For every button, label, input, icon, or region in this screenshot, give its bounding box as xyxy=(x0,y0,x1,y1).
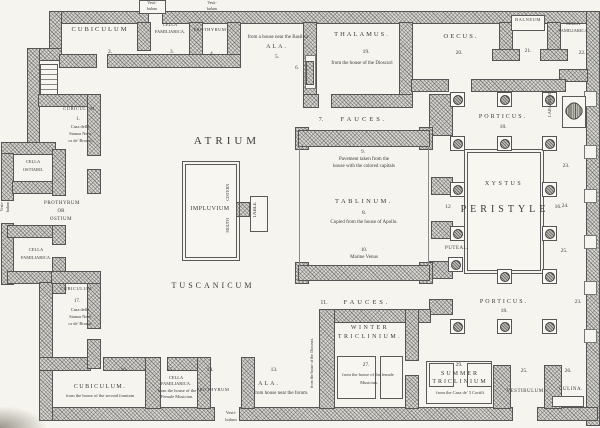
column-icon xyxy=(450,319,465,334)
prothyrum4-label: PROTHYRUM xyxy=(194,28,227,33)
ostium1-label: PROTHYRUM xyxy=(44,201,80,206)
wall-segment xyxy=(28,49,39,152)
wall-segment xyxy=(299,131,429,146)
casa2-label: Stanza Nera xyxy=(69,132,91,137)
casa2-label: Stanza Nera xyxy=(69,315,91,320)
winter2-label: TRICLINIUM. xyxy=(338,334,402,340)
table-label: TABLE xyxy=(253,202,258,218)
n24-label: 24. xyxy=(562,204,569,210)
wall-segment xyxy=(242,358,254,408)
wall-segment xyxy=(146,358,160,408)
ala5_note-label: from a house near the Basilica xyxy=(248,35,309,40)
cub16-label: CUBICULUM. xyxy=(74,384,127,390)
cubiculum2-label: CUBICULUM xyxy=(71,27,128,34)
no26-label: 26. xyxy=(565,369,572,375)
vesti1-label: Vesti- xyxy=(207,1,216,5)
culina-label: CULINA. xyxy=(559,387,583,392)
vesti1-label: Vesti- xyxy=(226,411,237,416)
no7-label: 7. xyxy=(319,117,324,123)
column-shaft xyxy=(500,95,510,105)
wall-segment xyxy=(138,23,150,50)
xystus-label: XYSTUS xyxy=(485,181,523,187)
column-icon xyxy=(542,226,557,241)
tabn2-label: house with the colored capitals xyxy=(333,164,395,169)
no13-label: 13. xyxy=(271,368,278,374)
no1-label: 1. xyxy=(76,117,80,122)
tabn1-label: Pavement taken from the xyxy=(339,157,389,162)
wall-segment xyxy=(40,408,214,420)
column-icon xyxy=(450,226,465,241)
wall-segment xyxy=(406,376,418,408)
wall-segment xyxy=(299,266,429,280)
thal_note-label: from the house of the Dioscuri xyxy=(331,61,392,66)
column-shaft xyxy=(545,322,555,332)
c15c-label: from the house of the xyxy=(158,389,197,394)
wall-segment xyxy=(88,170,100,193)
column-icon xyxy=(450,136,465,151)
no3-label: 3. xyxy=(170,50,174,55)
c15a-label: CELLA xyxy=(169,376,184,381)
cellaost1-label: CELLA xyxy=(26,160,41,165)
no21-label: 21. xyxy=(525,49,532,55)
vesti1-label: Vesti- xyxy=(147,1,156,5)
wall-segment xyxy=(320,310,334,408)
column-shaft xyxy=(453,229,463,239)
cellaost2-label: OSTIARII. xyxy=(23,168,43,173)
door-opening xyxy=(585,282,596,294)
column-icon xyxy=(497,92,512,107)
snote-label: from the Casa de' 3 Cortili xyxy=(436,391,484,396)
casa3-label: or de' Bronzi xyxy=(68,322,91,327)
column-shaft xyxy=(453,322,463,332)
tabn3-label: Copied from the house of Apollo. xyxy=(330,220,397,225)
wall-segment xyxy=(198,358,210,408)
no22-label: 22. xyxy=(579,51,586,57)
cfL2-label: FAMILIARICA. xyxy=(21,256,51,261)
wall-segment xyxy=(406,310,418,360)
no11-label: 11. xyxy=(320,300,327,306)
column-shaft xyxy=(451,260,461,270)
c3b-label: FAMILIARICA. xyxy=(155,30,185,35)
no16-label: 16. xyxy=(555,205,562,211)
door-opening xyxy=(585,190,596,202)
tabn4-label: Marine Venus xyxy=(350,255,378,260)
ostium3-label: OSTIUM xyxy=(50,217,72,222)
wall-segment xyxy=(430,300,452,314)
column-icon xyxy=(497,319,512,334)
c22b-label: FAMILIARICA xyxy=(558,29,587,34)
no25b-label: 25. xyxy=(521,369,528,375)
wall-segment xyxy=(494,366,510,408)
vestibulum-label: VESTIBULUM. xyxy=(507,389,546,394)
no15-label: 15. xyxy=(167,368,174,374)
column-shaft xyxy=(453,95,463,105)
wall-segment xyxy=(53,226,65,244)
dining-couch xyxy=(337,356,376,399)
n25-label: 25. xyxy=(561,249,568,255)
wall-segment xyxy=(304,95,318,107)
wall-segment xyxy=(541,50,567,60)
no12-label: 12 xyxy=(445,205,451,211)
cub17-label: CUBICULUM xyxy=(60,287,92,292)
wall-segment xyxy=(8,226,58,237)
wall-segment xyxy=(432,222,452,238)
door-opening xyxy=(585,330,596,342)
kitchen-hearth xyxy=(552,396,584,407)
no14-label: 14. xyxy=(207,368,214,374)
column-shaft xyxy=(500,139,510,149)
n23c-label: 23. xyxy=(575,300,582,306)
no19-label: 19. xyxy=(363,50,370,56)
wall-segment xyxy=(228,23,240,55)
wall-segment xyxy=(400,23,412,95)
vesti1-label: Vesti- xyxy=(0,202,4,211)
wall-segment xyxy=(53,150,65,195)
wall-segment xyxy=(432,178,452,194)
fauces-label: FAUCES. xyxy=(343,300,390,307)
wnote2-label: Musician. xyxy=(360,381,378,386)
casa1-label: Casa della xyxy=(71,125,90,130)
column-icon xyxy=(450,182,465,197)
ala5-label: ALA. xyxy=(266,44,288,50)
no8-label: 8. xyxy=(362,211,366,217)
no29-label: 29. xyxy=(456,363,463,369)
no18-label: 18. xyxy=(501,309,508,315)
balneum-label: BALNEUM xyxy=(515,18,541,23)
cistern-label: CISTERN xyxy=(226,184,230,201)
column-shaft xyxy=(545,139,555,149)
ala13n-label: from house near the forum. xyxy=(254,391,309,396)
wall-segment xyxy=(55,12,148,23)
column-shaft xyxy=(545,185,555,195)
c22a-label: CELLA xyxy=(566,22,581,27)
wall-segment xyxy=(88,95,100,155)
no9-label: 9. xyxy=(361,150,365,155)
wall-segment xyxy=(60,55,96,67)
lararium-label: LARARIUM. xyxy=(548,92,553,117)
wall-segment xyxy=(40,358,90,370)
summer1-label: SUMMER xyxy=(441,371,479,377)
dioscuri-label: from the house of the Dioscuri. xyxy=(310,338,314,388)
cfL1-label: CELLA xyxy=(29,248,44,253)
wall-segment xyxy=(472,80,565,91)
no5-label: 5. xyxy=(275,55,279,61)
c15b-label: FAMILIARICA. xyxy=(161,382,191,387)
oecus-label: OECUS. xyxy=(444,34,479,41)
ostium2-label: OR xyxy=(58,209,65,214)
porticus-label: PORTICUS. xyxy=(480,299,528,305)
column-shaft xyxy=(453,185,463,195)
c3a-label: CELLA xyxy=(163,23,178,28)
wall-segment xyxy=(538,408,597,420)
no2-label: 2. xyxy=(108,50,112,56)
wall-segment xyxy=(8,272,58,283)
vesti2-label: bulum xyxy=(207,7,217,11)
column-icon xyxy=(497,136,512,151)
c15d-label: Female Musician. xyxy=(161,395,193,400)
thalamus-label: THALAMUS. xyxy=(334,32,390,39)
column-shaft xyxy=(453,139,463,149)
winter1-label: WINTER xyxy=(351,325,389,331)
column-icon xyxy=(542,182,557,197)
mouth-label: MOUTH xyxy=(226,218,230,233)
wall-segment xyxy=(587,12,599,425)
wall-segment xyxy=(493,50,519,60)
column-shaft xyxy=(545,272,555,282)
puteal-label: PUTEAL. xyxy=(445,246,469,251)
atrium-label: ATRIUM xyxy=(194,136,260,147)
casa1-label: Casa della xyxy=(71,308,90,313)
cub16n-label: from the house of the second fountain xyxy=(66,394,134,399)
cub1-label: CUBICULUM xyxy=(63,107,95,112)
wnote1-label: from the house of the female xyxy=(342,373,394,378)
wall-segment xyxy=(13,182,55,193)
wall-line xyxy=(428,146,429,266)
wall-segment xyxy=(412,80,448,91)
wall-segment xyxy=(2,143,55,154)
wall-segment xyxy=(88,340,100,368)
wall-segment xyxy=(2,154,13,200)
puteal-column xyxy=(448,257,463,272)
peristyle-label: PERISTYLE xyxy=(461,205,550,215)
scan-smudge xyxy=(0,406,48,428)
column-icon xyxy=(542,319,557,334)
wall-segment xyxy=(235,203,249,216)
summer2-label: TRICLINIUM xyxy=(432,379,487,385)
vesti2-label: bulum xyxy=(225,418,237,423)
casa3-label: or de' Bronzi xyxy=(68,139,91,144)
column-shaft xyxy=(500,272,510,282)
wall-segment xyxy=(307,62,313,84)
column-icon xyxy=(450,92,465,107)
column-shaft xyxy=(545,229,555,239)
ala13-label: ALA. xyxy=(258,381,280,387)
column-shaft xyxy=(500,322,510,332)
wall-segment xyxy=(332,95,412,107)
impluvium-label: IMPLUVIUM xyxy=(190,206,229,212)
column-icon xyxy=(542,269,557,284)
column-icon xyxy=(542,136,557,151)
no20-label: 20. xyxy=(456,51,463,57)
wall-segment xyxy=(104,358,152,370)
door-opening xyxy=(585,146,596,158)
no16b-label: 16. xyxy=(121,368,128,374)
porticus-label: PORTICUS. xyxy=(479,114,527,120)
wall-segment xyxy=(52,272,100,283)
vesti2-label: bulum xyxy=(147,7,157,11)
no10-label: 10. xyxy=(361,248,367,253)
no18-label: 18. xyxy=(500,125,507,131)
wall-segment xyxy=(430,95,452,135)
no17-label: 17. xyxy=(74,299,80,304)
door-opening xyxy=(585,92,596,106)
wall-segment xyxy=(240,408,512,420)
no6-label: 6. xyxy=(295,66,299,71)
no27-label: 27. xyxy=(363,363,370,369)
wall-segment xyxy=(108,55,240,67)
prothyrum14-label: PROTHYRUM xyxy=(197,388,230,393)
wall-line xyxy=(299,146,300,266)
vesti2-label: bulum xyxy=(6,202,10,212)
no4-label: 4. xyxy=(210,52,214,58)
wall-segment xyxy=(40,283,52,420)
column-icon xyxy=(497,269,512,284)
fauces-label: FAUCES. xyxy=(340,117,387,124)
door-opening xyxy=(585,236,596,248)
tablinum-label: TABLINUM. xyxy=(335,199,393,206)
staircase xyxy=(40,64,58,95)
n23-label: 23. xyxy=(563,164,570,170)
dining-couch xyxy=(380,356,403,399)
floor-plan: CUBICULUM2.CELLAFAMILIARICA.3.PROTHYRUM4… xyxy=(0,0,600,428)
tuscanicum-label: TUSCANICUM xyxy=(172,282,255,290)
